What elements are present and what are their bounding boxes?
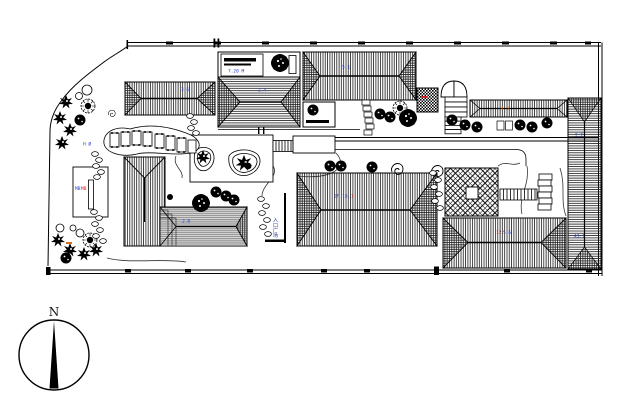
annotation-label: 2.8 [182,219,190,225]
stepped-terrace [538,174,552,210]
building-3-roof [303,52,416,100]
annotation-label: 5.6 [503,230,511,236]
annotation-label: 2.4 [258,88,266,94]
entry-vertical-label: 入口广场 [272,217,278,239]
annotation-label: 4.5 [501,106,509,112]
annotation-label: 5.1 [342,65,350,71]
annotation-label: H Ø [83,141,91,148]
paved-square-dark [417,88,438,112]
annotation-label: MB [81,186,87,192]
annotation-label: 7.20 M [228,69,245,75]
north-label: N [49,305,60,319]
middle-building-roof [297,173,437,246]
annotation-label: 3.6 [181,87,189,93]
annotation-label: 12 [496,230,502,236]
central-plaza [190,135,273,182]
bench [506,121,513,130]
courtyard-tree-icon [308,105,319,116]
long-building-roof [470,100,567,117]
pergola-walk [104,126,199,155]
annotation-label: MB [75,186,81,192]
garden-steps [362,100,374,135]
foot-bridge-east [500,189,537,200]
annotation-label: 2F 15. [334,194,350,200]
annotation-label: 2.2 [575,133,583,139]
entrance-doors [441,81,467,97]
annotation-label: 1 [351,194,354,200]
deciduous-tree-icon [81,99,95,113]
checker-plaza [445,168,498,216]
bench [497,121,504,130]
north-compass-icon: N [19,305,89,390]
courtyard-tree-icon [271,54,289,72]
bottom-right-building-roof [443,218,566,268]
site-plan-canvas: 7.20 M 3.6 2.4 5.1 4.5 2.2 43.1 2F 15. 1… [0,0,642,412]
building-1-roof [125,82,215,115]
foot-bridge-west [273,141,293,152]
platform [293,136,335,153]
annotation-label: 43.1 [574,234,585,240]
annex-building [303,102,335,127]
right-tall-building-roof [568,98,601,269]
flagpole-base [89,180,94,209]
tree-cluster-northwest [53,85,95,150]
tree-cluster-southwest [51,224,103,264]
